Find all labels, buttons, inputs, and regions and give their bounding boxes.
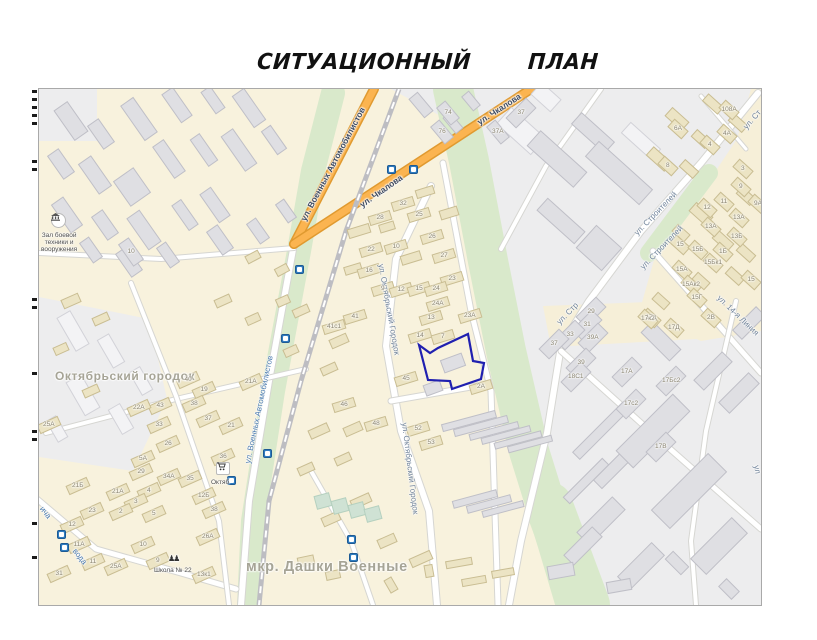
building-number: 16 — [366, 267, 373, 274]
street-label: ул. Чкалова — [475, 91, 522, 127]
building-number: 33 — [567, 331, 574, 338]
building-number: 22 — [368, 246, 375, 253]
scan-artifact-mark — [32, 160, 37, 163]
building-number: 38 — [211, 506, 218, 513]
building-number: 35 — [187, 475, 194, 482]
building-number: 17А — [621, 368, 633, 375]
building-number: 11А — [74, 541, 85, 548]
building-number: 23А — [464, 312, 476, 319]
bus-stop-icon — [60, 543, 69, 552]
building-number: 4 — [708, 141, 712, 148]
building-number: 12 — [69, 521, 76, 528]
building-number: 25А — [43, 421, 55, 428]
store-icon — [216, 462, 230, 480]
building-number: 8 — [666, 162, 670, 169]
district-label: мкр. Дашки Военные — [246, 559, 408, 575]
building-number: 2А — [477, 383, 485, 390]
building-number: 2 — [119, 508, 123, 515]
building-number: 28 — [377, 214, 384, 221]
building-number: 46 — [341, 401, 348, 408]
street-label: ул. Ст — [741, 108, 762, 131]
street-label: ул — [752, 464, 762, 474]
building-number: 15Г — [692, 294, 703, 301]
building-number: 33 — [156, 421, 163, 428]
street-label: ича — [38, 504, 53, 520]
street-label: вода — [71, 546, 89, 565]
building-number: 21А — [245, 378, 257, 385]
street-label: ул. Военных Автомобилистов — [243, 354, 275, 463]
building-number: 25 — [416, 211, 423, 218]
building-number: 52 — [415, 425, 422, 432]
building-number: 74 — [445, 109, 452, 116]
bus-stop-icon — [387, 165, 396, 174]
building-number: 38 — [191, 400, 198, 407]
building-number: 13 — [428, 314, 435, 321]
title-word-2: ПЛАН — [527, 50, 599, 75]
scan-artifact-mark — [32, 372, 37, 375]
scan-artifact-mark — [32, 90, 37, 93]
building-number: 26А — [202, 533, 214, 540]
title-word-1: СИТУАЦИОННЫЙ — [256, 50, 472, 75]
building-number: 43 — [157, 402, 164, 409]
building-number: 25А — [110, 563, 122, 570]
building-number: 27 — [441, 252, 448, 259]
building-number: 5А — [139, 455, 147, 462]
building-number: 37 — [518, 109, 525, 116]
building-number: 5 — [152, 510, 156, 517]
scan-artifact-mark — [32, 106, 37, 109]
scan-artifact-mark — [32, 556, 37, 559]
building-number: 13А — [705, 223, 717, 230]
building-number: 12 — [704, 204, 711, 211]
museum-label: Зал боевойтехники ивооружения — [41, 232, 77, 253]
building-number: 40 — [185, 376, 192, 383]
building-number: 15 — [748, 276, 755, 283]
building-number: 13А — [733, 214, 745, 221]
bus-stop-icon — [263, 449, 272, 458]
building-number: 13к1 — [197, 571, 211, 578]
building-number: 15Ак2 — [682, 281, 700, 288]
building-number: 15 — [416, 285, 423, 292]
building-number: 2В — [707, 314, 715, 321]
district-label: Октябрьский городок — [55, 369, 195, 383]
building-number: 4 — [147, 487, 151, 494]
building-number: 26 — [165, 440, 172, 447]
building-number: 9 — [739, 183, 743, 190]
building-number: 19 — [201, 386, 208, 393]
building-number: 12 — [398, 286, 405, 293]
building-number: 17к2 — [641, 315, 655, 322]
building-number: 48 — [373, 420, 380, 427]
building-number: 7 — [441, 333, 445, 340]
building-number: 21А — [112, 488, 124, 495]
school-icon: ♟♟ — [168, 548, 178, 566]
building-number: 39 — [578, 359, 585, 366]
building-number: 6А — [674, 125, 682, 132]
building-number: 9А — [754, 200, 762, 207]
building-number: 15Б — [692, 246, 704, 253]
building-number: 4А — [723, 130, 731, 137]
building-number: 36 — [220, 453, 227, 460]
building-number: 76 — [439, 128, 446, 135]
building-number: 9 — [156, 557, 160, 564]
building-number: 41с1 — [327, 323, 341, 330]
building-number: 14 — [417, 332, 424, 339]
building-number: 17Д — [668, 324, 680, 331]
street-label: ул. 14-я Линия — [715, 293, 760, 337]
building-number: 29 — [588, 308, 595, 315]
building-number: 32 — [400, 200, 407, 207]
building-number: 15Бк1 — [704, 259, 722, 266]
building-number: 17с2 — [624, 400, 638, 407]
building-number: 10 — [393, 243, 400, 250]
map-labels-layer: ул. Военных Автомобилистовул. Чкаловаул.… — [39, 89, 761, 605]
building-number: 24А — [432, 300, 444, 307]
building-number: 3 — [741, 165, 745, 172]
bus-stop-icon — [347, 535, 356, 544]
street-label: ул. Стр — [554, 300, 579, 326]
scan-artifact-mark — [32, 168, 37, 171]
building-number: 15 — [677, 241, 684, 248]
building-number: 3 — [134, 498, 138, 505]
building-number: 21 — [228, 422, 235, 429]
building-number: 41 — [352, 313, 359, 320]
building-number: 22А — [133, 404, 145, 411]
scan-artifact-mark — [32, 430, 37, 433]
building-number: 37А — [492, 128, 504, 135]
building-number: 9 — [381, 285, 385, 292]
building-number: 39А — [587, 334, 599, 341]
school-label: Школа № 22 — [154, 567, 192, 574]
bus-stop-icon — [409, 165, 418, 174]
building-number: 108А — [722, 106, 737, 113]
store-label: Октяб — [211, 479, 229, 486]
building-number: 10 — [140, 541, 147, 548]
scan-artifact-mark — [32, 122, 37, 125]
street-label: ул. Октябрьский Городок — [377, 263, 402, 355]
building-number: 1Б — [719, 248, 727, 255]
building-number: 34А — [163, 473, 175, 480]
bus-stop-icon — [281, 334, 290, 343]
street-label: ул. Чкалова — [358, 173, 405, 210]
document-page: { "document": { "title": "СИТУАЦИОННЫЙ П… — [0, 0, 817, 640]
bus-stop-icon — [57, 530, 66, 539]
building-number: 17В — [655, 443, 667, 450]
scan-artifact-mark — [32, 298, 37, 301]
building-number: 17Бс2 — [662, 377, 680, 384]
scan-artifact-mark — [32, 522, 37, 525]
building-number: 18С1 — [568, 373, 584, 380]
street-label: ул. Военных Автомобилистов — [298, 105, 367, 222]
building-number: 23 — [449, 275, 456, 282]
page-title: СИТУАЦИОННЫЙ ПЛАН — [256, 50, 599, 75]
building-number: 45 — [403, 375, 410, 382]
scan-artifact-mark — [32, 306, 37, 309]
building-number: 31 — [584, 321, 591, 328]
building-number: 15А — [676, 266, 688, 273]
building-number: 21Б — [72, 482, 84, 489]
bus-stop-icon — [295, 265, 304, 274]
bus-stop-icon — [349, 553, 358, 562]
building-number: 23 — [89, 507, 96, 514]
building-number: 11 — [90, 558, 97, 565]
building-number: 12Б — [198, 492, 210, 499]
building-number: 37 — [551, 340, 558, 347]
street-label: ул. Октябрьский Городок — [400, 422, 420, 515]
building-number: 53 — [428, 439, 435, 446]
building-number: 31 — [56, 570, 63, 577]
building-number: 37 — [205, 415, 212, 422]
building-number: 24 — [433, 285, 440, 292]
museum-icon — [51, 213, 66, 233]
building-number: 10 — [128, 248, 135, 255]
building-number: 29 — [138, 468, 145, 475]
scan-artifact-mark — [32, 98, 37, 101]
building-number: 26 — [429, 233, 436, 240]
situational-plan-map: ул. Военных Автомобилистовул. Чкаловаул.… — [38, 88, 762, 606]
scan-artifact-mark — [32, 438, 37, 441]
scan-artifact-mark — [32, 114, 37, 117]
building-number: 13Б — [731, 233, 743, 240]
building-number: 11 — [721, 198, 728, 205]
